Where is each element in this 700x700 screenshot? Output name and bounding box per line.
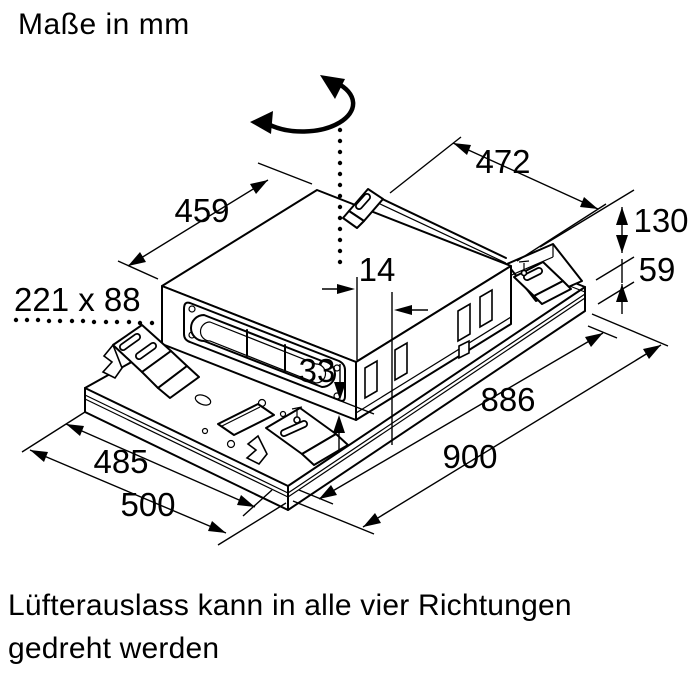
dim-label-unit-height: 130 <box>633 202 688 240</box>
dim-label-duct-opening: 221 x 88 <box>14 281 141 319</box>
dim-label-panel-length: 900 <box>442 438 497 476</box>
dim-label-panel-inner-width: 485 <box>93 443 148 481</box>
dim-label-panel-height: 59 <box>639 251 676 289</box>
dim-label-outlet-bottom-gap: 33 <box>299 352 336 390</box>
dim-label-panel-width: 500 <box>120 486 175 524</box>
dim-label-panel-inner-length: 886 <box>480 381 535 419</box>
dim-label-outlet-offset: 14 <box>359 251 396 289</box>
caption-line-2: gedreht werden <box>8 627 572 670</box>
caption-line-1: Lüfterauslass kann in alle vier Richtung… <box>8 584 572 627</box>
dim-label-unit-depth: 459 <box>174 192 229 230</box>
dimension-drawing-page: Maße in mm <box>0 0 700 700</box>
caption: Lüfterauslass kann in alle vier Richtung… <box>8 584 572 670</box>
dim-label-unit-width: 472 <box>475 143 530 181</box>
rotation-arrow-icon <box>250 75 353 134</box>
